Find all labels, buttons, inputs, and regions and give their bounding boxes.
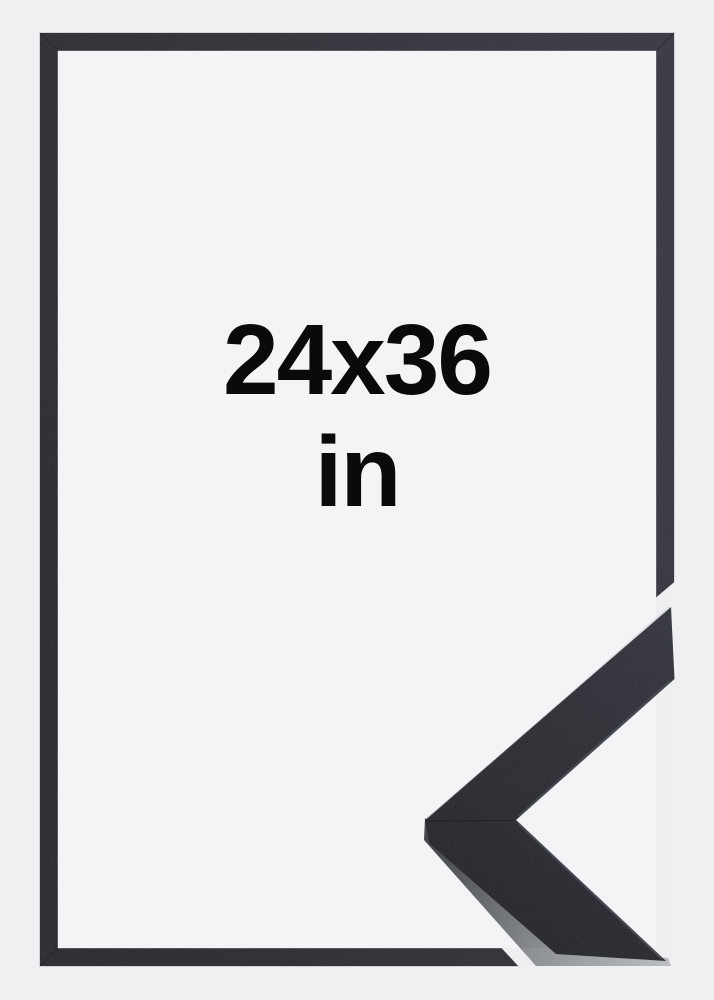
product-image: 24x36 in	[0, 0, 714, 1000]
size-label: 24x36 in	[0, 304, 714, 528]
size-dimensions-text: 24x36	[0, 304, 714, 416]
size-unit-text: in	[0, 416, 714, 528]
